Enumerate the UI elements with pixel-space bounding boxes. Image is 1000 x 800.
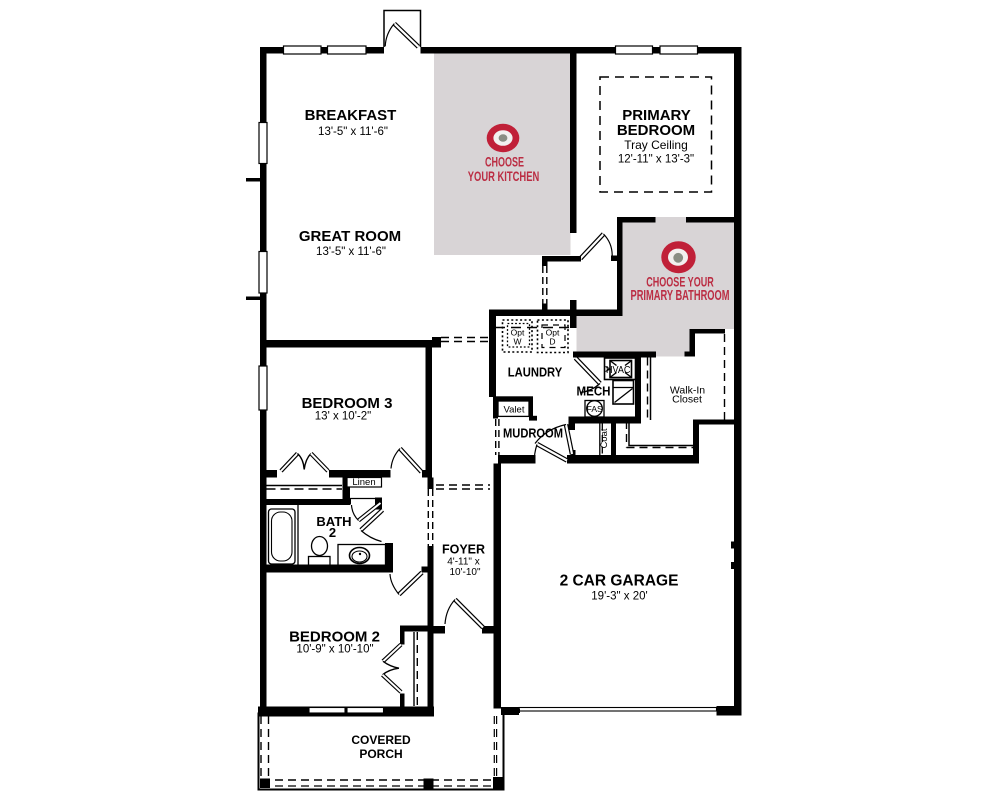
svg-text:COVERED: COVERED: [351, 733, 411, 747]
svg-text:PRIMARY BATHROOM: PRIMARY BATHROOM: [631, 288, 730, 304]
svg-text:2 CAR GARAGE: 2 CAR GARAGE: [560, 573, 679, 590]
svg-text:LAUNDRY: LAUNDRY: [508, 366, 563, 380]
svg-text:FOYER: FOYER: [442, 543, 485, 557]
svg-text:Coat: Coat: [599, 428, 610, 448]
svg-text:Valet: Valet: [504, 405, 525, 416]
svg-text:13' x 10'-2": 13' x 10'-2": [315, 411, 371, 423]
svg-text:Closet: Closet: [672, 394, 702, 406]
svg-text:HVAC: HVAC: [606, 364, 631, 376]
svg-text:W: W: [513, 337, 521, 347]
svg-text:Linen: Linen: [352, 477, 375, 488]
svg-text:10'-9" x 10'-10": 10'-9" x 10'-10": [296, 644, 373, 656]
svg-text:19'-3" x 20': 19'-3" x 20': [591, 591, 647, 603]
svg-text:13'-5" x 11'-6": 13'-5" x 11'-6": [316, 246, 386, 258]
svg-text:12'-11" x 13'-3": 12'-11" x 13'-3": [618, 154, 694, 166]
svg-text:BEDROOM: BEDROOM: [617, 122, 695, 139]
svg-text:BREAKFAST: BREAKFAST: [305, 107, 397, 124]
svg-text:Tray Ceiling: Tray Ceiling: [624, 138, 688, 152]
svg-text:MECH: MECH: [577, 384, 611, 399]
svg-text:YOUR KITCHEN: YOUR KITCHEN: [468, 168, 540, 184]
svg-text:2: 2: [329, 525, 336, 540]
svg-text:PORCH: PORCH: [359, 747, 402, 761]
svg-text:4'-11" x: 4'-11" x: [447, 557, 480, 568]
svg-text:13'-5" x 11'-6": 13'-5" x 11'-6": [318, 126, 388, 138]
svg-text:GREAT ROOM: GREAT ROOM: [299, 228, 401, 245]
svg-text:10'-10": 10'-10": [449, 567, 480, 578]
svg-text:D: D: [549, 337, 555, 347]
svg-text:MUDROOM: MUDROOM: [503, 426, 563, 441]
svg-text:FAS: FAS: [587, 404, 603, 414]
svg-text:BEDROOM 3: BEDROOM 3: [302, 395, 393, 412]
